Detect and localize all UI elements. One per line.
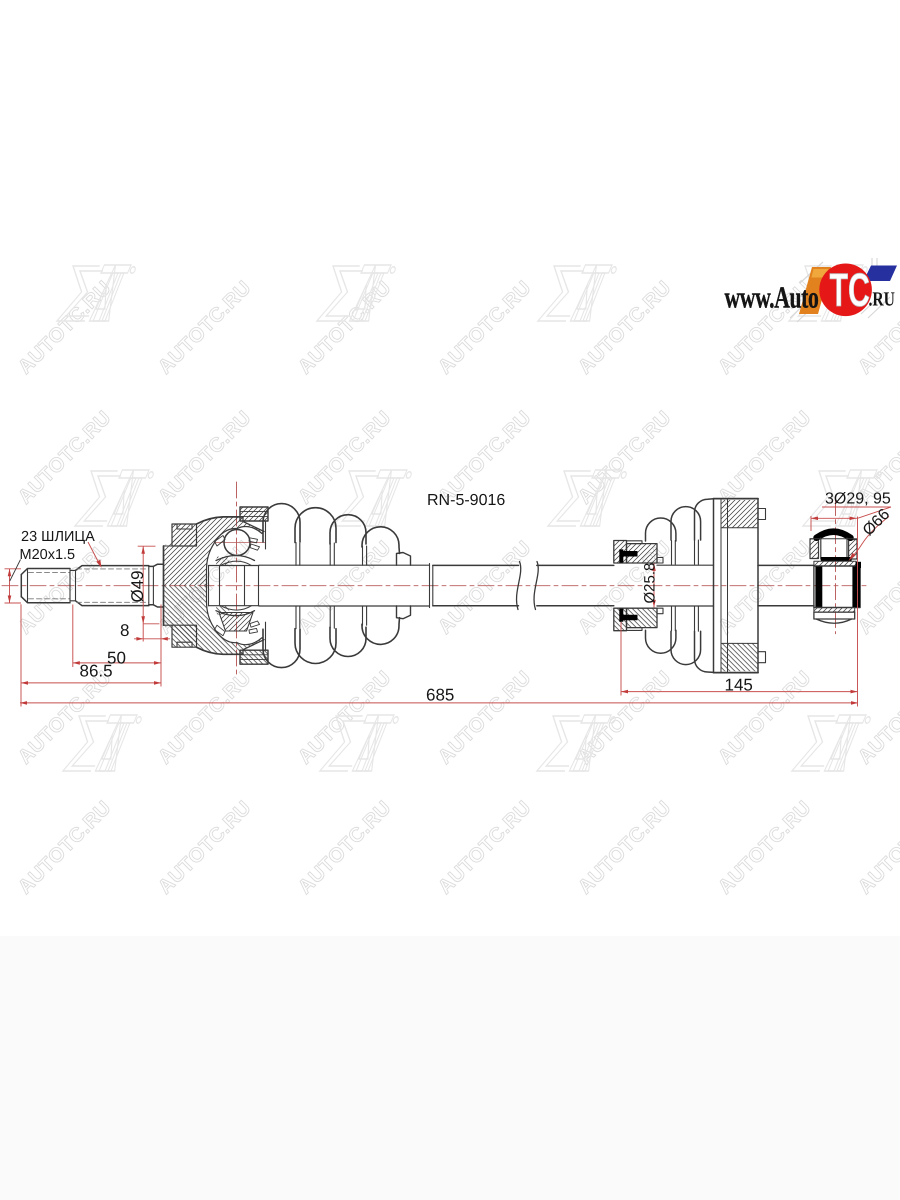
svg-text:Ø25.8: Ø25.8 [642, 563, 659, 604]
svg-text:TC: TC [830, 263, 870, 316]
svg-text:685: 685 [426, 686, 454, 705]
svg-text:145: 145 [725, 676, 753, 695]
svg-text:86.5: 86.5 [80, 662, 113, 681]
svg-text:Ø49: Ø49 [128, 570, 147, 602]
svg-text:3Ø29, 95: 3Ø29, 95 [825, 491, 891, 508]
svg-text:8: 8 [120, 621, 129, 640]
svg-text:23 ШЛИЦА: 23 ШЛИЦА [21, 529, 95, 545]
svg-text:www.Auto: www.Auto [725, 281, 819, 315]
svg-text:M20x1.5: M20x1.5 [20, 547, 76, 563]
svg-text:RN-5-9016: RN-5-9016 [427, 492, 505, 509]
svg-text:.RU: .RU [869, 289, 895, 311]
